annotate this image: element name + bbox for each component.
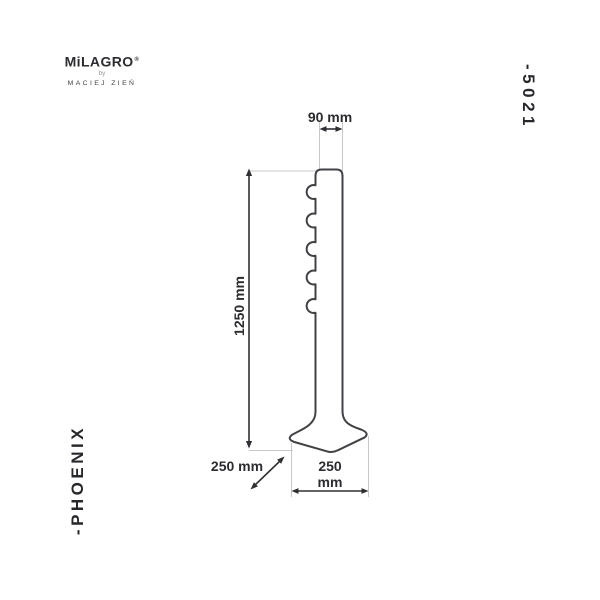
arrowhead-right-icon [336, 126, 343, 132]
dim-height: 1250 mm [231, 169, 252, 449]
arrowhead-left-icon [320, 126, 327, 132]
product-dimension-sheet: MiLAGRO® by MACIEJ ZIEŃ -5021 -PHOENIX 9… [0, 0, 600, 600]
dim-base-width-label-line2: mm [318, 474, 343, 490]
dim-top-width-label: 90 mm [308, 109, 352, 125]
dim-top-width: 90 mm [308, 109, 352, 132]
dim-base-depth: 250 mm [211, 457, 285, 490]
arrowhead-up-icon [246, 169, 252, 177]
arrowhead-down-icon [246, 441, 252, 449]
dim-base-width: 250 mm [292, 458, 369, 494]
dim-base-depth-label: 250 mm [211, 458, 263, 474]
arrowhead-left-icon [292, 488, 299, 494]
lamp-outline [290, 170, 367, 453]
arrowhead-right-icon [362, 488, 369, 494]
dim-base-width-label-line1: 250 [318, 458, 342, 474]
technical-drawing: 90 mm 1250 mm 250 mm 250 mm [0, 0, 600, 600]
dim-height-label: 1250 mm [231, 276, 247, 336]
